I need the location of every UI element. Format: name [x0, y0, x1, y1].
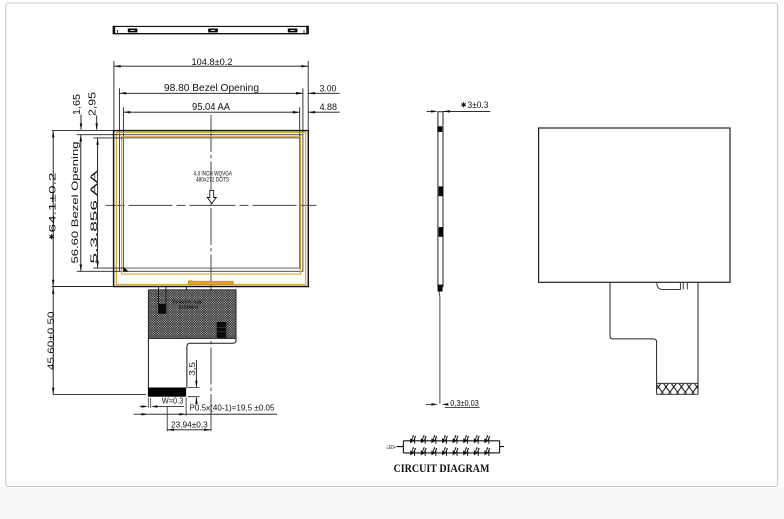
- svg-text:104.8±0.2: 104.8±0.2: [192, 57, 233, 67]
- svg-text:56.60 Bezel Opening: 56.60 Bezel Opening: [70, 142, 80, 264]
- svg-text:95.04 AA: 95.04 AA: [192, 102, 230, 113]
- svg-text:CIRCUIT DIAGRAM: CIRCUIT DIAGRAM: [394, 463, 490, 475]
- svg-text:2,95: 2,95: [87, 91, 98, 116]
- svg-text:3.00: 3.00: [320, 83, 337, 94]
- svg-text:4.88: 4.88: [320, 102, 337, 113]
- svg-text:480x272 DOTS: 480x272 DOTS: [196, 176, 229, 183]
- svg-text:P0.5x(40-1)=19,5 ±0.05: P0.5x(40-1)=19,5 ±0.05: [190, 404, 276, 413]
- svg-text:45.60±0.50: 45.60±0.50: [46, 312, 56, 371]
- svg-text:(C1304A): (C1304A): [179, 304, 199, 309]
- svg-text:3,5: 3,5: [188, 361, 197, 375]
- svg-text:23,94±0,3: 23,94±0,3: [171, 421, 208, 430]
- svg-text:LED+: LED+: [387, 445, 397, 451]
- svg-text:5.3.856 AA: 5.3.856 AA: [89, 170, 99, 263]
- svg-text:0,3±0,03: 0,3±0,03: [450, 399, 479, 408]
- svg-text:64.1±0.2: 64.1±0.2: [47, 173, 57, 233]
- svg-text:98.80 Bezel Opening: 98.80 Bezel Opening: [164, 83, 259, 94]
- svg-text:W=0.3: W=0.3: [162, 397, 184, 406]
- svg-text:1,65: 1,65: [72, 93, 83, 115]
- svg-text:3±0.3: 3±0.3: [468, 100, 489, 110]
